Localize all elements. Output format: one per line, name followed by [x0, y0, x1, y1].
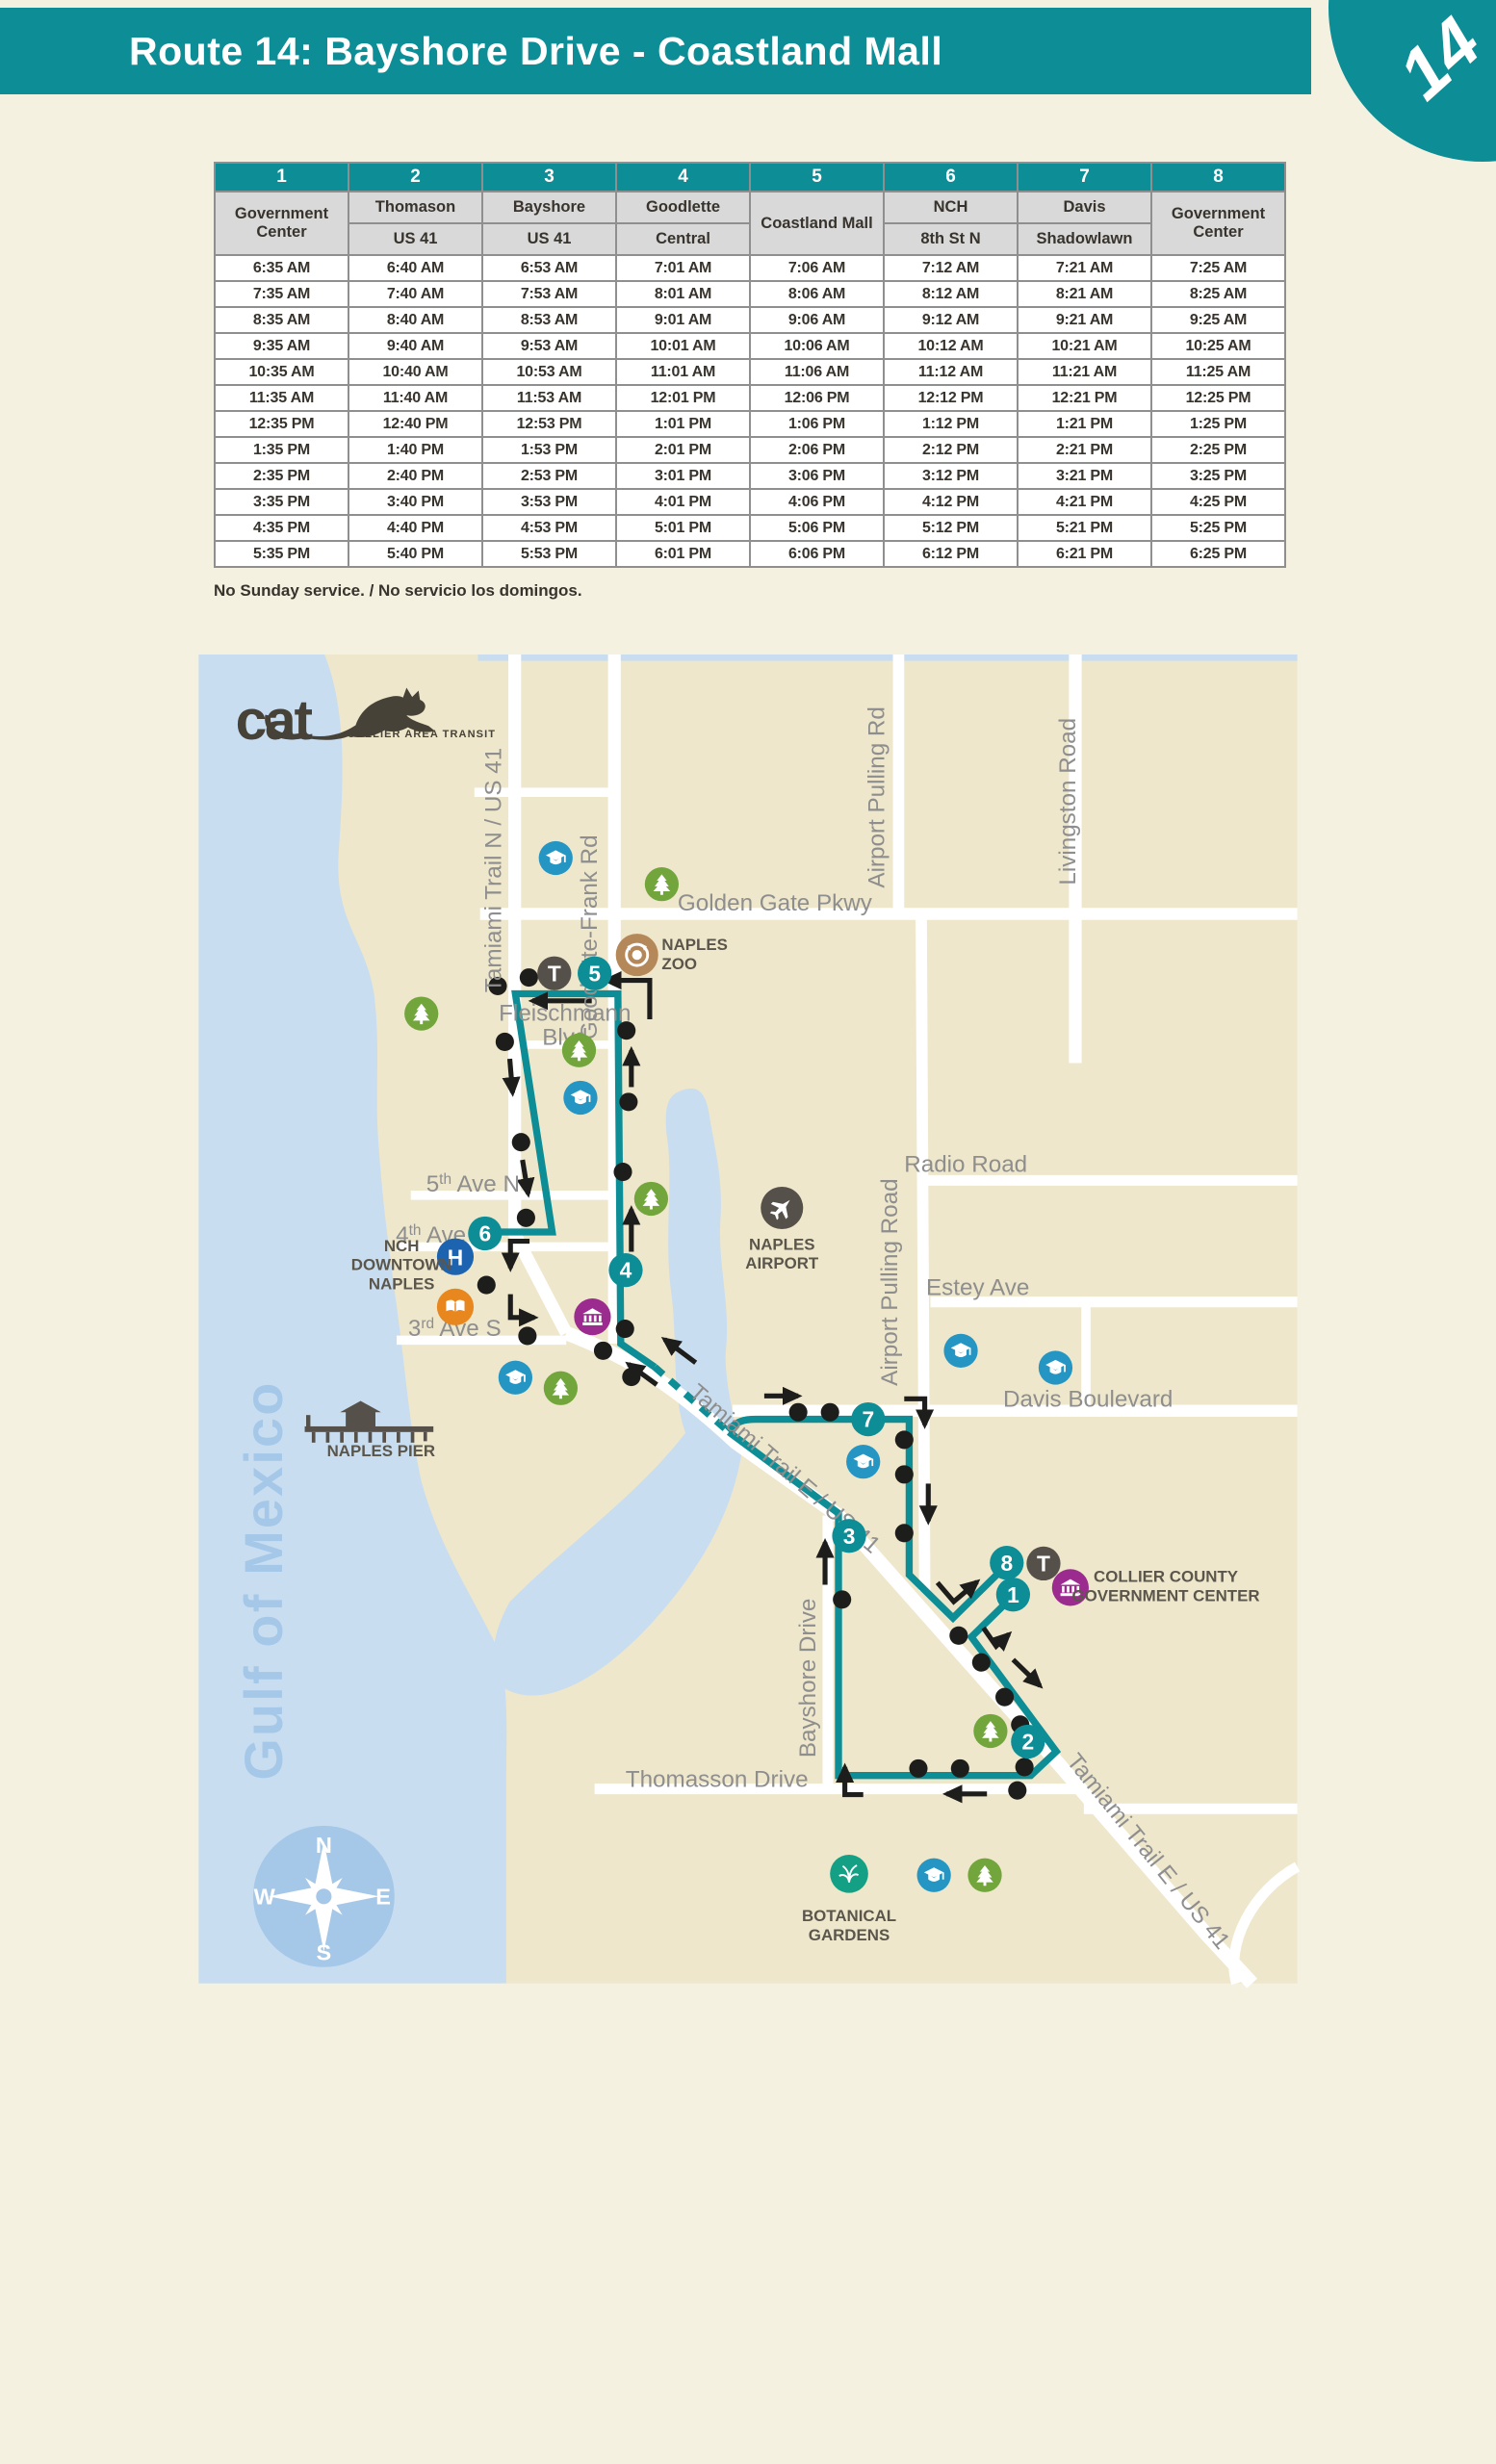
- gradcap-icon: [499, 1361, 532, 1395]
- time-cell: 9:53 AM: [482, 333, 616, 359]
- time-cell: 7:25 AM: [1151, 255, 1285, 281]
- column-number: 4: [616, 163, 750, 192]
- stop-street: US 41: [483, 222, 615, 254]
- time-cell: 2:01 PM: [616, 437, 750, 463]
- compass-n: N: [316, 1833, 332, 1858]
- timetable-row: 12:35 PM12:40 PM12:53 PM1:01 PM1:06 PM1:…: [215, 411, 1285, 437]
- page-title: Route 14: Bayshore Drive - Coastland Mal…: [129, 29, 942, 74]
- time-cell: 6:25 PM: [1151, 541, 1285, 567]
- compass-e: E: [375, 1884, 391, 1909]
- time-cell: 1:25 PM: [1151, 411, 1285, 437]
- time-cell: 4:06 PM: [750, 489, 884, 515]
- svg-text:3: 3: [843, 1524, 856, 1549]
- poi-label: DOWNTOWN: [351, 1256, 452, 1274]
- cat-logo-subtext: COLLIER AREA TRANSIT: [348, 729, 496, 740]
- time-cell: 3:40 PM: [348, 489, 482, 515]
- bus-stop-dot-icon: [833, 1590, 851, 1608]
- time-cell: 6:53 AM: [482, 255, 616, 281]
- time-cell: 6:06 PM: [750, 541, 884, 567]
- time-cell: 4:21 PM: [1018, 489, 1151, 515]
- time-cell: 6:21 PM: [1018, 541, 1151, 567]
- bus-stop-dot-icon: [613, 1163, 632, 1181]
- time-cell: 4:25 PM: [1151, 489, 1285, 515]
- time-cell: 12:21 PM: [1018, 385, 1151, 411]
- stop-name: Thomason: [349, 192, 481, 222]
- time-cell: 4:12 PM: [884, 489, 1018, 515]
- stop-name-cell: Government Center: [1151, 192, 1285, 255]
- time-cell: 10:25 AM: [1151, 333, 1285, 359]
- time-cell: 7:12 AM: [884, 255, 1018, 281]
- stop-street: Central: [617, 222, 749, 254]
- road-label: Bayshore Drive: [795, 1599, 821, 1758]
- cat-logo-text: cat: [236, 689, 313, 752]
- timetable-row: 3:35 PM3:40 PM3:53 PM4:01 PM4:06 PM4:12 …: [215, 489, 1285, 515]
- time-cell: 9:21 AM: [1018, 307, 1151, 333]
- bus-stop-dot-icon: [972, 1654, 991, 1672]
- route-stop-4: 4: [608, 1253, 642, 1287]
- poi-label: NAPLES: [661, 936, 727, 954]
- tree-icon: [562, 1034, 596, 1067]
- time-cell: 4:01 PM: [616, 489, 750, 515]
- time-cell: 7:35 AM: [215, 281, 348, 307]
- time-cell: 5:35 PM: [215, 541, 348, 567]
- time-cell: 3:21 PM: [1018, 463, 1151, 489]
- time-cell: 12:40 PM: [348, 411, 482, 437]
- time-cell: 1:53 PM: [482, 437, 616, 463]
- timetable-row: 5:35 PM5:40 PM5:53 PM6:01 PM6:06 PM6:12 …: [215, 541, 1285, 567]
- timetable-row: 1:35 PM1:40 PM1:53 PM2:01 PM2:06 PM2:12 …: [215, 437, 1285, 463]
- time-cell: 11:35 AM: [215, 385, 348, 411]
- tree-icon: [645, 867, 679, 901]
- time-cell: 7:01 AM: [616, 255, 750, 281]
- time-cell: 11:21 AM: [1018, 359, 1151, 385]
- time-cell: 5:40 PM: [348, 541, 482, 567]
- time-cell: 9:12 AM: [884, 307, 1018, 333]
- gradcap-icon: [1039, 1350, 1072, 1384]
- time-cell: 7:06 AM: [750, 255, 884, 281]
- canal-top: [477, 654, 1297, 661]
- bus-stop-dot-icon: [616, 1320, 634, 1338]
- bus-stop-dot-icon: [512, 1133, 530, 1151]
- road-label: Davis Boulevard: [1003, 1386, 1173, 1412]
- stop-name: Bayshore: [483, 192, 615, 222]
- time-cell: 2:06 PM: [750, 437, 884, 463]
- svg-text:4: 4: [620, 1258, 632, 1283]
- bus-stop-dot-icon: [895, 1430, 914, 1449]
- time-cell: 2:25 PM: [1151, 437, 1285, 463]
- time-cell: 9:06 AM: [750, 307, 884, 333]
- poi-label: GOVERNMENT CENTER: [1072, 1586, 1260, 1604]
- time-cell: 2:12 PM: [884, 437, 1018, 463]
- tree-icon: [973, 1714, 1007, 1748]
- botanical-icon: [830, 1855, 868, 1893]
- stop-street: Shadowlawn: [1019, 222, 1150, 254]
- time-cell: 2:35 PM: [215, 463, 348, 489]
- stop-street: US 41: [349, 222, 481, 254]
- bus-stop-dot-icon: [789, 1403, 808, 1422]
- tree-icon: [544, 1372, 578, 1405]
- poi-label: ZOO: [661, 955, 697, 973]
- time-cell: 5:25 PM: [1151, 515, 1285, 541]
- column-number: 2: [348, 163, 482, 192]
- timetable-row: 8:35 AM8:40 AM8:53 AM9:01 AM9:06 AM9:12 …: [215, 307, 1285, 333]
- bus-stop-dot-icon: [1016, 1758, 1034, 1776]
- library-icon: [437, 1289, 474, 1325]
- time-cell: 6:12 PM: [884, 541, 1018, 567]
- time-cell: 7:40 AM: [348, 281, 482, 307]
- bus-stop-dot-icon: [496, 1033, 514, 1051]
- stop-street: 8th St N: [885, 222, 1017, 254]
- time-cell: 10:21 AM: [1018, 333, 1151, 359]
- route-stop-3: 3: [832, 1519, 865, 1553]
- time-cell: 12:12 PM: [884, 385, 1018, 411]
- road-label: Radio Road: [904, 1152, 1027, 1178]
- compass-s: S: [317, 1939, 332, 1964]
- svg-text:1: 1: [1007, 1582, 1019, 1607]
- time-cell: 8:21 AM: [1018, 281, 1151, 307]
- compass-rose: N E S W: [253, 1826, 395, 1967]
- stop-name-cell: DavisShadowlawn: [1018, 192, 1151, 255]
- bus-stop-dot-icon: [949, 1627, 967, 1645]
- timetable-row: 2:35 PM2:40 PM2:53 PM3:01 PM3:06 PM3:12 …: [215, 463, 1285, 489]
- column-number: 5: [750, 163, 884, 192]
- time-cell: 11:53 AM: [482, 385, 616, 411]
- route-stop-2: 2: [1011, 1725, 1045, 1758]
- time-cell: 1:21 PM: [1018, 411, 1151, 437]
- direction-arrow-icon: [510, 1059, 513, 1092]
- gulf-of-mexico-label: Gulf of Mexico: [233, 1380, 294, 1780]
- time-cell: 10:40 AM: [348, 359, 482, 385]
- svg-text:8: 8: [1000, 1551, 1013, 1576]
- time-cell: 4:35 PM: [215, 515, 348, 541]
- timetable-row: 11:35 AM11:40 AM11:53 AM12:01 PM12:06 PM…: [215, 385, 1285, 411]
- bus-stop-dot-icon: [477, 1276, 496, 1295]
- stop-name-cell: ThomasonUS 41: [348, 192, 482, 255]
- time-cell: 12:01 PM: [616, 385, 750, 411]
- compass-w: W: [254, 1884, 276, 1909]
- stop-name-cell: GoodletteCentral: [616, 192, 750, 255]
- poi-label: AIRPORT: [745, 1254, 819, 1272]
- time-cell: 10:06 AM: [750, 333, 884, 359]
- transfer-icon: T: [1026, 1547, 1060, 1580]
- poi-label: NCH: [384, 1237, 420, 1255]
- time-cell: 5:21 PM: [1018, 515, 1151, 541]
- poi-label: NAPLES: [369, 1274, 434, 1293]
- poi-label: NAPLES PIER: [327, 1442, 436, 1460]
- route-stop-6: 6: [468, 1217, 502, 1250]
- road-label: Livingston Road: [1055, 718, 1081, 885]
- stop-name: Davis: [1019, 192, 1150, 222]
- column-number: 1: [215, 163, 348, 192]
- tree-icon: [404, 996, 438, 1030]
- time-cell: 12:53 PM: [482, 411, 616, 437]
- road-label: Fleischmann: [499, 1000, 631, 1026]
- time-cell: 4:40 PM: [348, 515, 482, 541]
- time-cell: 3:06 PM: [750, 463, 884, 489]
- time-cell: 9:25 AM: [1151, 307, 1285, 333]
- stop-name-cell: Coastland Mall: [750, 192, 884, 255]
- time-cell: 8:06 AM: [750, 281, 884, 307]
- time-cell: 11:01 AM: [616, 359, 750, 385]
- time-cell: 3:35 PM: [215, 489, 348, 515]
- time-cell: 10:12 AM: [884, 333, 1018, 359]
- svg-text:T: T: [1037, 1551, 1050, 1576]
- stop-name-cell: Government Center: [215, 192, 348, 255]
- timetable-row: 4:35 PM4:40 PM4:53 PM5:01 PM5:06 PM5:12 …: [215, 515, 1285, 541]
- gradcap-icon: [846, 1445, 880, 1478]
- svg-text:2: 2: [1021, 1730, 1034, 1755]
- bus-stop-dot-icon: [1008, 1782, 1026, 1800]
- bus-stop-dot-icon: [821, 1403, 839, 1422]
- svg-text:5: 5: [588, 961, 601, 986]
- stop-name: NCH: [885, 192, 1017, 222]
- svg-text:T: T: [548, 961, 561, 986]
- column-number: 3: [482, 163, 616, 192]
- time-cell: 3:53 PM: [482, 489, 616, 515]
- time-cell: 11:25 AM: [1151, 359, 1285, 385]
- tree-icon: [967, 1859, 1001, 1892]
- time-cell: 1:12 PM: [884, 411, 1018, 437]
- time-cell: 10:35 AM: [215, 359, 348, 385]
- gradcap-icon: [563, 1081, 597, 1115]
- timetable-row: 6:35 AM6:40 AM6:53 AM7:01 AM7:06 AM7:12 …: [215, 255, 1285, 281]
- time-cell: 1:40 PM: [348, 437, 482, 463]
- time-cell: 9:01 AM: [616, 307, 750, 333]
- time-cell: 2:40 PM: [348, 463, 482, 489]
- bus-stop-dot-icon: [594, 1342, 612, 1360]
- time-cell: 7:21 AM: [1018, 255, 1151, 281]
- time-cell: 11:12 AM: [884, 359, 1018, 385]
- route-number-badge: 14: [1311, 0, 1496, 185]
- poi-label: NAPLES: [749, 1235, 814, 1253]
- time-cell: 8:53 AM: [482, 307, 616, 333]
- time-cell: 11:40 AM: [348, 385, 482, 411]
- timetable-row: 10:35 AM10:40 AM10:53 AM11:01 AM11:06 AM…: [215, 359, 1285, 385]
- bus-stop-dot-icon: [909, 1759, 927, 1778]
- road-label: Airport Pulling Road: [877, 1178, 903, 1385]
- timetable: 12345678Government CenterThomasonUS 41Ba…: [214, 162, 1286, 568]
- time-cell: 5:01 PM: [616, 515, 750, 541]
- time-cell: 6:01 PM: [616, 541, 750, 567]
- time-cell: 6:35 AM: [215, 255, 348, 281]
- bus-stop-dot-icon: [520, 968, 538, 987]
- route-stop-5: 5: [578, 957, 611, 990]
- bus-stop-dot-icon: [895, 1465, 914, 1483]
- road-label: Tamiami Trail N / US 41: [481, 748, 507, 992]
- column-number: 6: [884, 163, 1018, 192]
- time-cell: 3:01 PM: [616, 463, 750, 489]
- time-cell: 12:35 PM: [215, 411, 348, 437]
- svg-text:6: 6: [478, 1221, 491, 1246]
- column-number: 7: [1018, 163, 1151, 192]
- time-cell: 7:53 AM: [482, 281, 616, 307]
- time-cell: 8:25 AM: [1151, 281, 1285, 307]
- time-cell: 3:25 PM: [1151, 463, 1285, 489]
- time-cell: 3:12 PM: [884, 463, 1018, 489]
- time-cell: 10:53 AM: [482, 359, 616, 385]
- time-cell: 2:53 PM: [482, 463, 616, 489]
- stop-name-cell: NCH8th St N: [884, 192, 1018, 255]
- time-cell: 8:35 AM: [215, 307, 348, 333]
- bus-stop-dot-icon: [619, 1092, 637, 1111]
- stop-name: Goodlette: [617, 192, 749, 222]
- time-cell: 8:01 AM: [616, 281, 750, 307]
- tree-icon: [634, 1182, 668, 1216]
- bus-stop-dot-icon: [517, 1209, 535, 1227]
- transfer-icon: T: [537, 957, 571, 990]
- bus-stop-dot-icon: [622, 1368, 640, 1386]
- time-cell: 5:12 PM: [884, 515, 1018, 541]
- header-bar: Route 14: Bayshore Drive - Coastland Mal…: [0, 8, 1321, 94]
- gradcap-icon: [943, 1334, 977, 1368]
- road-label: Golden Gate Pkwy: [678, 890, 873, 916]
- bus-stop-dot-icon: [951, 1759, 969, 1778]
- timetable-row: 9:35 AM9:40 AM9:53 AM10:01 AM10:06 AM10:…: [215, 333, 1285, 359]
- time-cell: 8:40 AM: [348, 307, 482, 333]
- road-label: Thomasson Drive: [626, 1766, 809, 1792]
- road-airport-pulling-s: [921, 914, 925, 1592]
- bus-stop-dot-icon: [895, 1524, 914, 1542]
- bus-stop-dot-icon: [518, 1326, 536, 1345]
- time-cell: 12:06 PM: [750, 385, 884, 411]
- plane-icon: [761, 1187, 803, 1229]
- column-number: 8: [1151, 163, 1285, 192]
- bus-stop-dot-icon: [995, 1688, 1014, 1707]
- time-cell: 12:25 PM: [1151, 385, 1285, 411]
- bank-icon: [574, 1298, 610, 1335]
- stop-name-cell: BayshoreUS 41: [482, 192, 616, 255]
- route-stop-8: 8: [990, 1546, 1023, 1579]
- route-stop-1: 1: [996, 1578, 1030, 1611]
- poi-label: COLLIER COUNTY: [1094, 1568, 1238, 1586]
- time-cell: 1:06 PM: [750, 411, 884, 437]
- timetable-row: 7:35 AM7:40 AM7:53 AM8:01 AM8:06 AM8:12 …: [215, 281, 1285, 307]
- time-cell: 10:01 AM: [616, 333, 750, 359]
- time-cell: 4:53 PM: [482, 515, 616, 541]
- time-cell: 9:35 AM: [215, 333, 348, 359]
- time-cell: 5:53 PM: [482, 541, 616, 567]
- schedule-section: 12345678Government CenterThomasonUS 41Ba…: [214, 162, 1286, 601]
- service-note: No Sunday service. / No servicio los dom…: [214, 581, 1286, 601]
- road-label: Airport Pulling Rd: [864, 706, 890, 887]
- svg-text:7: 7: [863, 1407, 875, 1432]
- time-cell: 11:06 AM: [750, 359, 884, 385]
- road-label: Estey Ave: [926, 1274, 1029, 1300]
- poi-label: GARDENS: [809, 1926, 890, 1944]
- time-cell: 1:01 PM: [616, 411, 750, 437]
- time-cell: 5:06 PM: [750, 515, 884, 541]
- time-cell: 9:40 AM: [348, 333, 482, 359]
- route-stop-7: 7: [851, 1402, 885, 1436]
- zoo-icon: [616, 934, 658, 976]
- time-cell: 6:40 AM: [348, 255, 482, 281]
- time-cell: 2:21 PM: [1018, 437, 1151, 463]
- poi-label: BOTANICAL: [802, 1907, 896, 1925]
- time-cell: 8:12 AM: [884, 281, 1018, 307]
- time-cell: 1:35 PM: [215, 437, 348, 463]
- gradcap-icon: [539, 841, 573, 875]
- route-map: Tamiami Trail N / US 41Goodlette-Frank R…: [0, 654, 1496, 2464]
- gradcap-icon: [917, 1859, 951, 1892]
